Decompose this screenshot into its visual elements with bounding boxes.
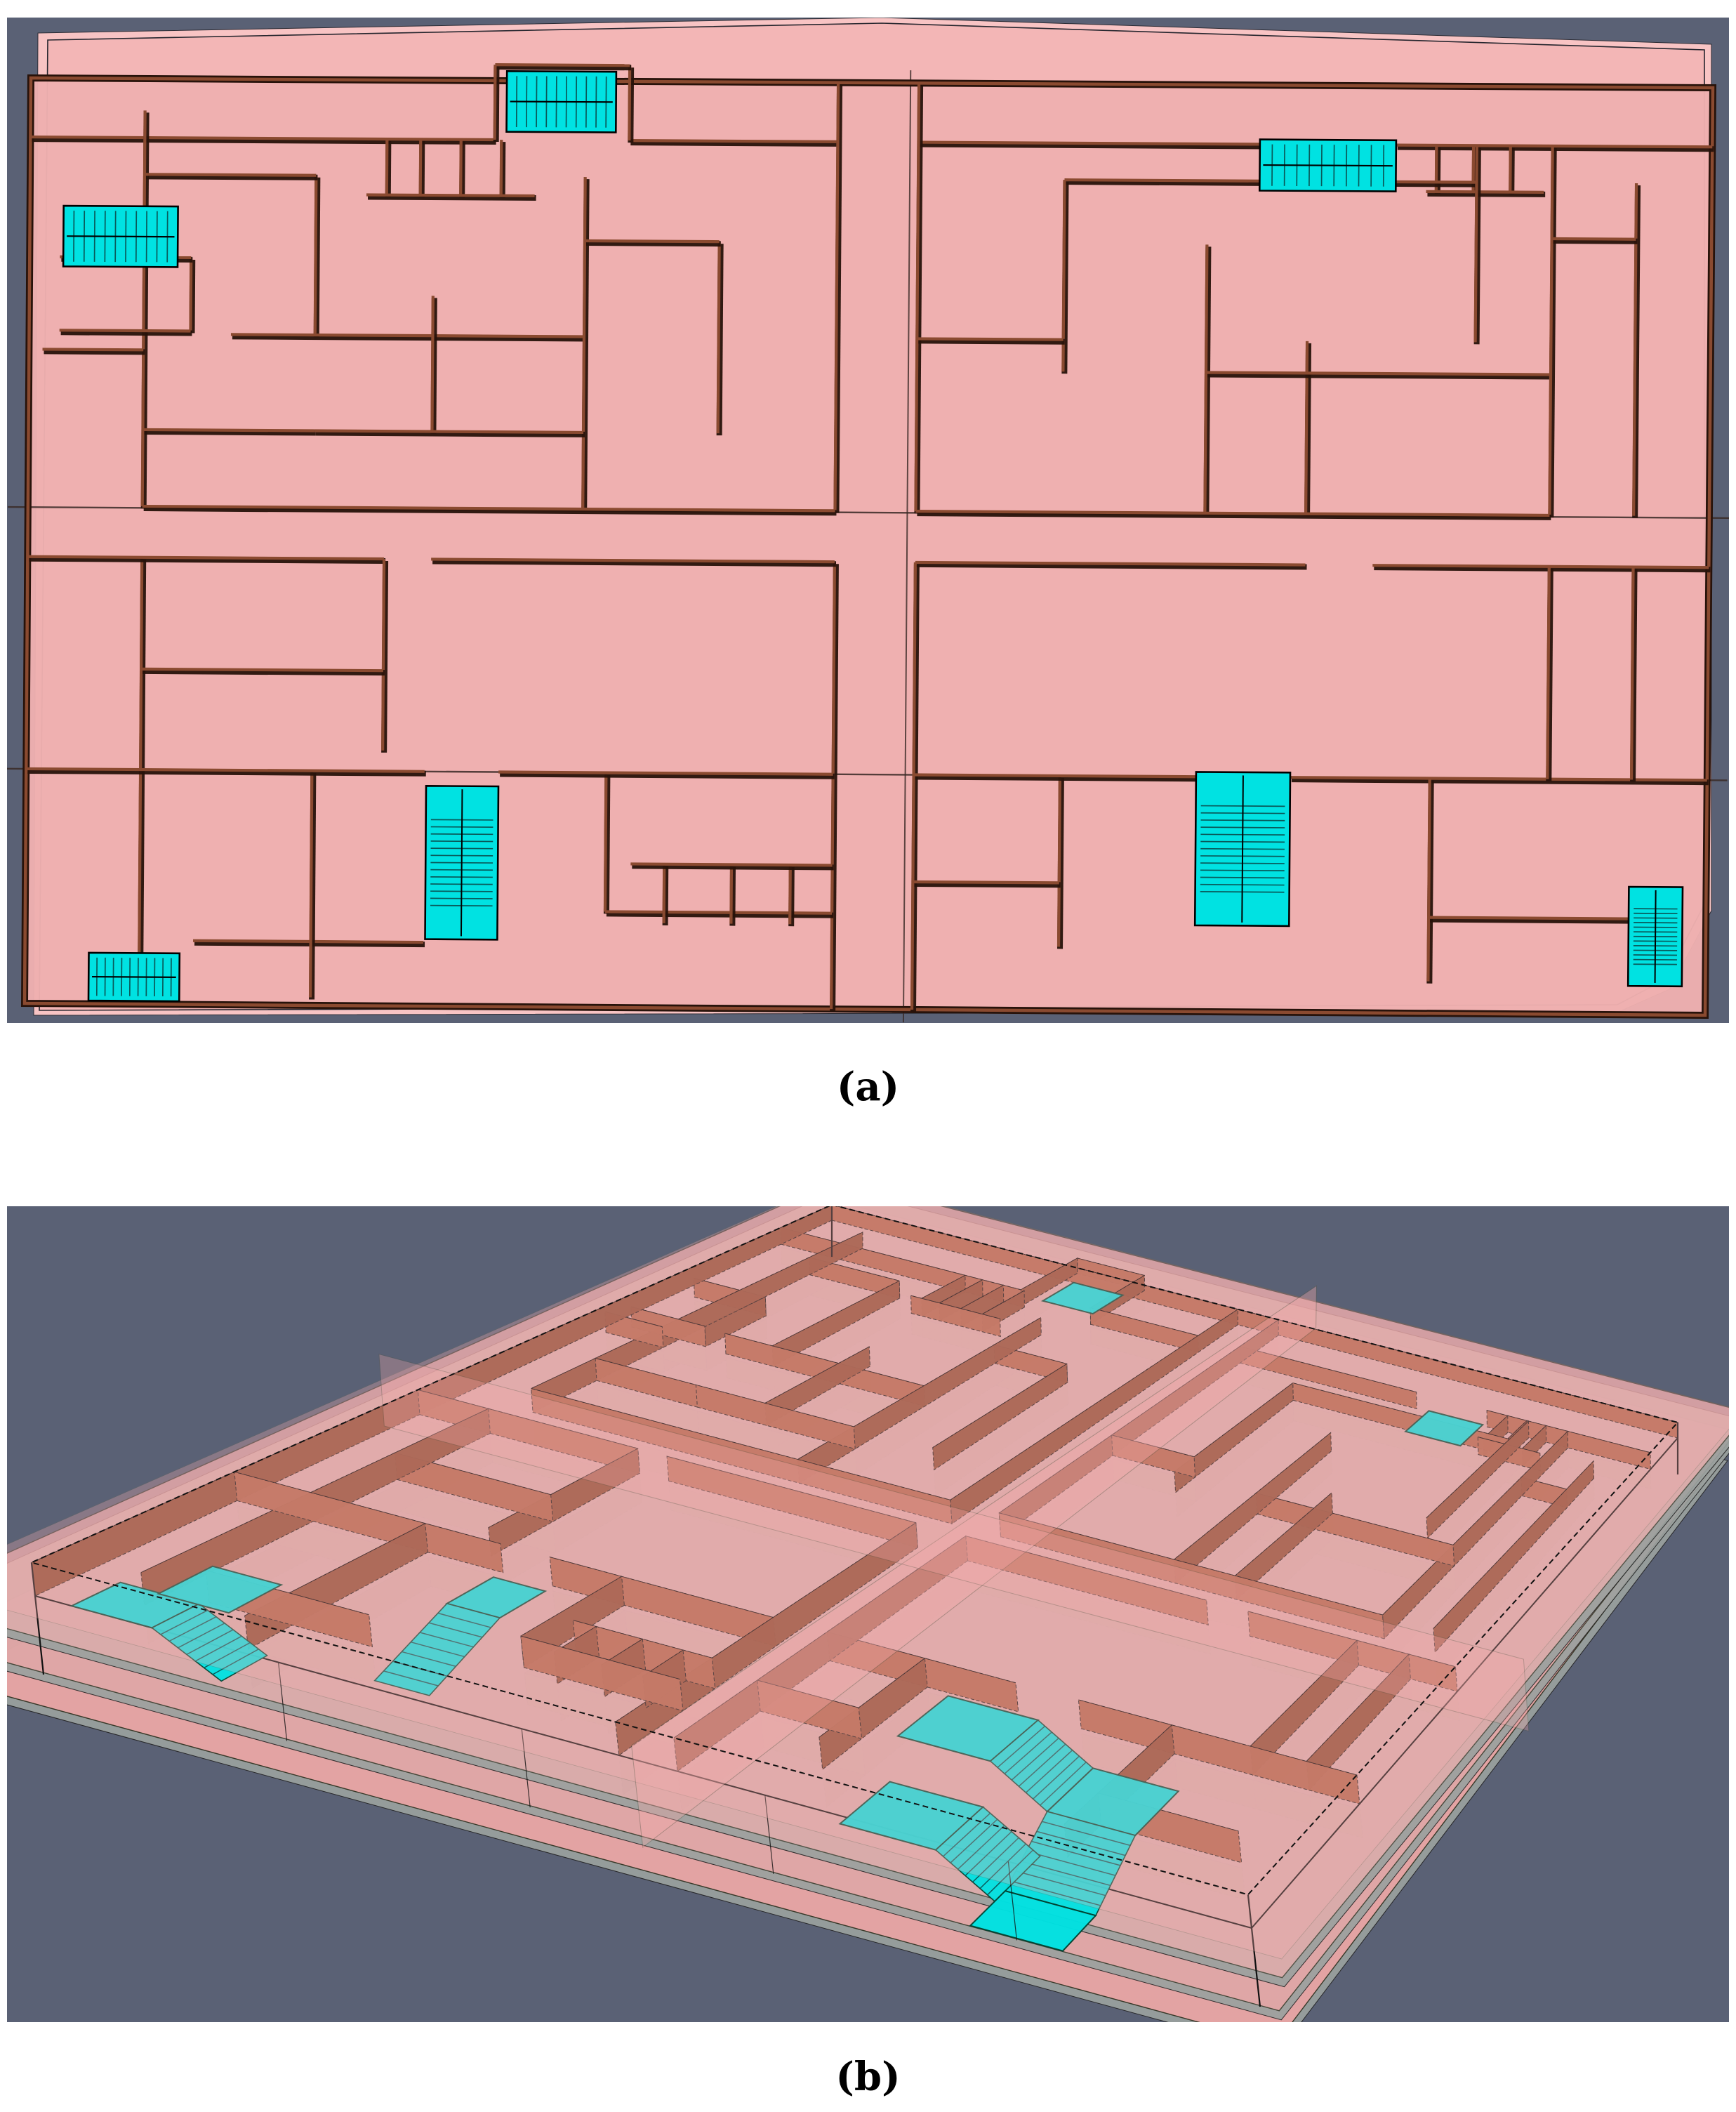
floorplan-top-view-svg — [7, 18, 1729, 1023]
wall-segment — [366, 194, 535, 195]
wall-segment — [383, 559, 384, 751]
wall-segment — [460, 140, 461, 196]
wall-segment — [1396, 145, 1712, 147]
wall-segment — [143, 430, 314, 431]
wall-segment — [432, 296, 432, 431]
stair-shaft-divider — [1655, 890, 1656, 983]
wall-segment — [1552, 239, 1636, 239]
wall-segment — [501, 140, 502, 196]
wall-segment — [585, 241, 720, 242]
panel-b-label: (b) — [0, 2042, 1736, 2112]
wall-segment — [495, 65, 630, 65]
wall-segment — [913, 882, 1059, 883]
wall-segment — [314, 431, 583, 433]
wall-segment — [141, 669, 383, 671]
wall-segment — [1510, 146, 1511, 192]
wall-segment — [60, 330, 191, 331]
stair-landing-divider — [1263, 165, 1392, 166]
stair-landing-divider — [67, 236, 174, 237]
wall-segment — [310, 771, 312, 998]
wall-segment-shadow — [61, 332, 192, 333]
wall-segment — [731, 864, 731, 923]
stair-landing-divider — [92, 977, 176, 977]
wall-segment — [918, 143, 1259, 145]
panel-a-top-view — [7, 18, 1729, 1023]
wall-segment — [1547, 567, 1549, 779]
wall-segment-shadow — [1427, 194, 1545, 194]
wall-segment — [1476, 145, 1477, 342]
wall-segment — [1059, 776, 1060, 946]
wall-segment — [917, 338, 1063, 339]
wall-segment — [145, 174, 316, 175]
figure-canvas: (a) (b) — [0, 0, 1736, 2112]
panel-a-label: (a) — [0, 1052, 1736, 1122]
wall-segment — [629, 65, 630, 140]
wall-segment — [1306, 341, 1307, 514]
wall-segment-shadow — [586, 243, 721, 244]
wall-segment — [629, 140, 837, 142]
wall-segment — [43, 349, 144, 350]
wall-segment — [664, 864, 665, 923]
wall-segment — [315, 176, 317, 335]
wall-segment — [630, 864, 832, 865]
wall-segment — [495, 65, 496, 140]
floor-area — [25, 78, 1713, 1015]
wall-segment — [605, 911, 832, 913]
wall-segment — [1429, 918, 1629, 919]
wall-segment — [790, 865, 790, 924]
wall-segment — [387, 139, 387, 195]
wall-segment — [1428, 779, 1429, 982]
panel-b-3d-view — [7, 1206, 1729, 2022]
wall-segment — [193, 941, 423, 942]
wall-segment — [1631, 567, 1634, 780]
stair-landing-divider — [510, 102, 613, 103]
wall-segment — [191, 258, 192, 331]
wall-segment — [1426, 192, 1544, 192]
wall-segment-shadow — [44, 351, 145, 352]
wall-segment — [914, 775, 1196, 777]
building-3d-view-svg — [7, 1206, 1729, 2022]
wall-segment — [420, 139, 421, 195]
wall-segment-shadow — [496, 67, 631, 67]
wall-segment — [605, 773, 606, 912]
wall-segment-shadow — [1553, 241, 1638, 242]
wall-segment — [718, 242, 720, 433]
